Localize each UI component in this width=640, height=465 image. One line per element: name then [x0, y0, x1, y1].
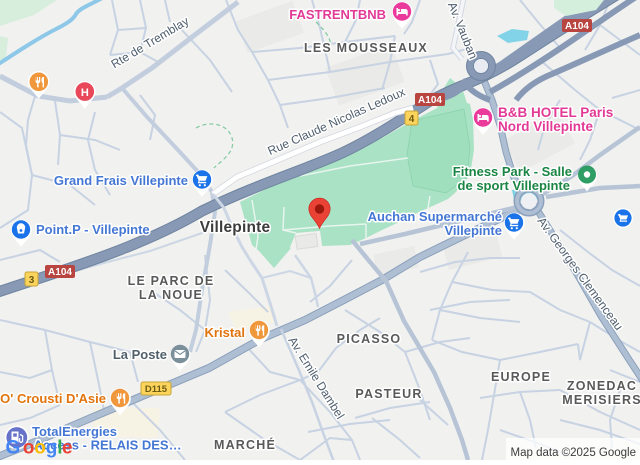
svg-text:EUROPE: EUROPE	[491, 370, 551, 384]
svg-text:G: G	[6, 438, 21, 459]
svg-text:3: 3	[29, 275, 35, 286]
svg-text:Map data ©2025 Google: Map data ©2025 Google	[511, 447, 636, 459]
svg-text:ZONEDAC: ZONEDAC	[567, 379, 637, 393]
svg-text:4: 4	[409, 114, 415, 125]
svg-text:FASTRENTBNB: FASTRENTBNB	[289, 7, 386, 22]
svg-text:A104: A104	[48, 267, 72, 278]
svg-text:H: H	[81, 87, 89, 99]
svg-text:Villepinte: Villepinte	[200, 219, 271, 236]
svg-text:LA NOUE: LA NOUE	[139, 288, 203, 302]
svg-text:de sport Villepinte: de sport Villepinte	[458, 178, 570, 193]
svg-text:B&B HOTEL Paris: B&B HOTEL Paris	[498, 105, 613, 120]
svg-text:MARCHÉ: MARCHÉ	[214, 437, 276, 452]
svg-text:Kristal: Kristal	[205, 325, 245, 340]
svg-text:Fitness Park - Salle: Fitness Park - Salle	[453, 164, 572, 179]
svg-text:MERISIERS: MERISIERS	[562, 393, 640, 407]
svg-text:Point.P - Villepinte: Point.P - Villepinte	[36, 222, 150, 237]
svg-text:o: o	[34, 438, 46, 459]
svg-text:LES MOUSSEAUX: LES MOUSSEAUX	[304, 41, 428, 55]
svg-text:e: e	[62, 438, 73, 459]
svg-text:PICASSO: PICASSO	[337, 332, 402, 346]
svg-text:O' Crousti D'Asie: O' Crousti D'Asie	[0, 391, 106, 406]
svg-text:Grand Frais Villepinte: Grand Frais Villepinte	[54, 173, 188, 188]
svg-text:D115: D115	[145, 384, 168, 395]
svg-text:LE PARC DE: LE PARC DE	[128, 274, 215, 288]
svg-text:Nord Villepinte: Nord Villepinte	[498, 119, 594, 134]
svg-text:PASTEUR: PASTEUR	[355, 387, 422, 401]
svg-text:Villepinte: Villepinte	[444, 223, 502, 238]
svg-text:Auchan Supermarché: Auchan Supermarché	[368, 209, 502, 224]
svg-text:A104: A104	[565, 21, 589, 32]
svg-text:o: o	[23, 438, 35, 459]
svg-text:La Poste: La Poste	[113, 347, 167, 362]
svg-text:A104: A104	[418, 95, 442, 106]
svg-text:g: g	[46, 438, 58, 459]
